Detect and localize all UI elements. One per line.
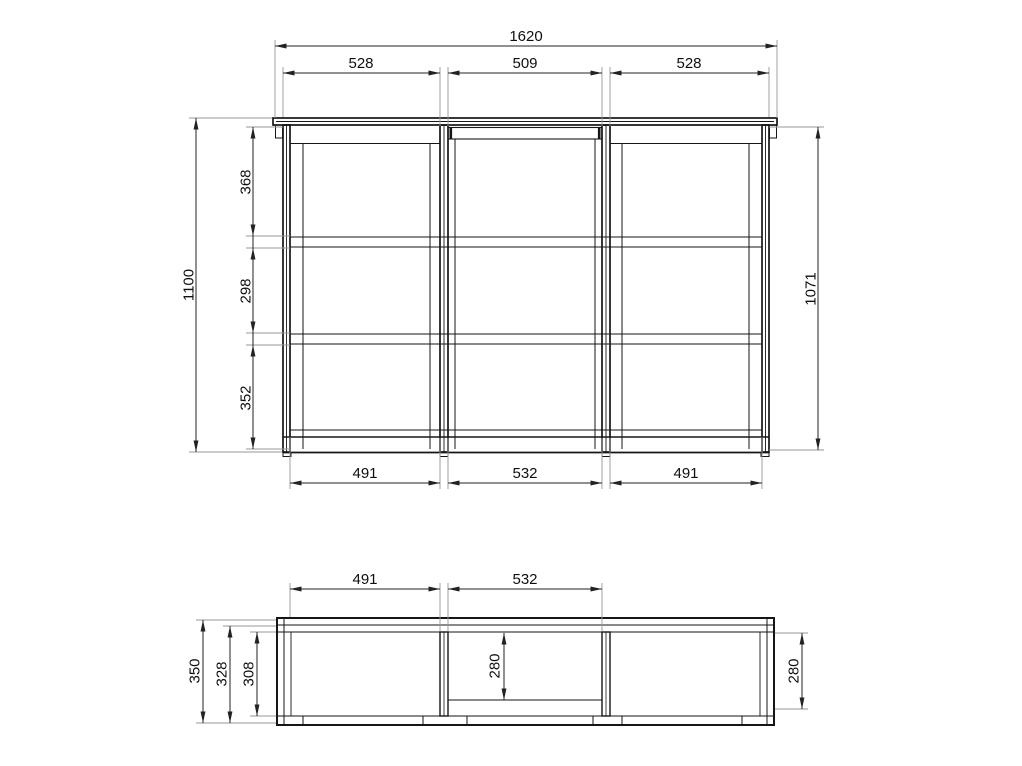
dim-plan-depth-inner: 308 <box>241 661 258 686</box>
plan-outline <box>277 618 774 725</box>
dim-plan-width-1: 491 <box>352 571 377 588</box>
dim-front-opening-height-3: 352 <box>238 385 255 410</box>
dim-plan-depth-overall: 350 <box>187 658 204 683</box>
dim-front-bottom-width-1: 491 <box>352 465 377 482</box>
dim-front-opening-height-1: 368 <box>238 169 255 194</box>
dim-front-section-width-2: 509 <box>512 55 537 72</box>
dim-front-opening-height-2: 298 <box>238 278 255 303</box>
dim-front-overall-width: 1620 <box>509 28 542 45</box>
front-view-cabinet <box>273 118 777 457</box>
top-rail-middle <box>448 128 602 140</box>
dim-plan-inner-depth-right: 280 <box>786 658 803 683</box>
dim-front-bottom-width-3: 491 <box>673 465 698 482</box>
plan-view-cabinet <box>277 618 774 725</box>
dim-plan-inner-depth-middle: 280 <box>487 653 504 678</box>
front-view: 1620 528 509 528 1100 368 298 352 1071 4… <box>181 28 825 489</box>
drawing-canvas: 1620 528 509 528 1100 368 298 352 1071 4… <box>0 0 1022 766</box>
dim-plan-width-2: 532 <box>512 571 537 588</box>
dim-front-bottom-width-2: 532 <box>512 465 537 482</box>
plan-view-extension-lines <box>196 583 808 723</box>
front-view-extension-lines <box>189 40 824 489</box>
dim-front-height-left: 1100 <box>181 269 198 301</box>
dim-front-section-width-1: 528 <box>348 55 373 72</box>
plan-view: 491 532 350 328 308 280 280 <box>187 571 809 725</box>
dim-front-section-width-3: 528 <box>676 55 701 72</box>
dim-plan-depth-body: 328 <box>214 661 231 686</box>
technical-drawing: 1620 528 509 528 1100 368 298 352 1071 4… <box>0 0 1022 766</box>
dim-front-height-right: 1071 <box>803 272 820 305</box>
